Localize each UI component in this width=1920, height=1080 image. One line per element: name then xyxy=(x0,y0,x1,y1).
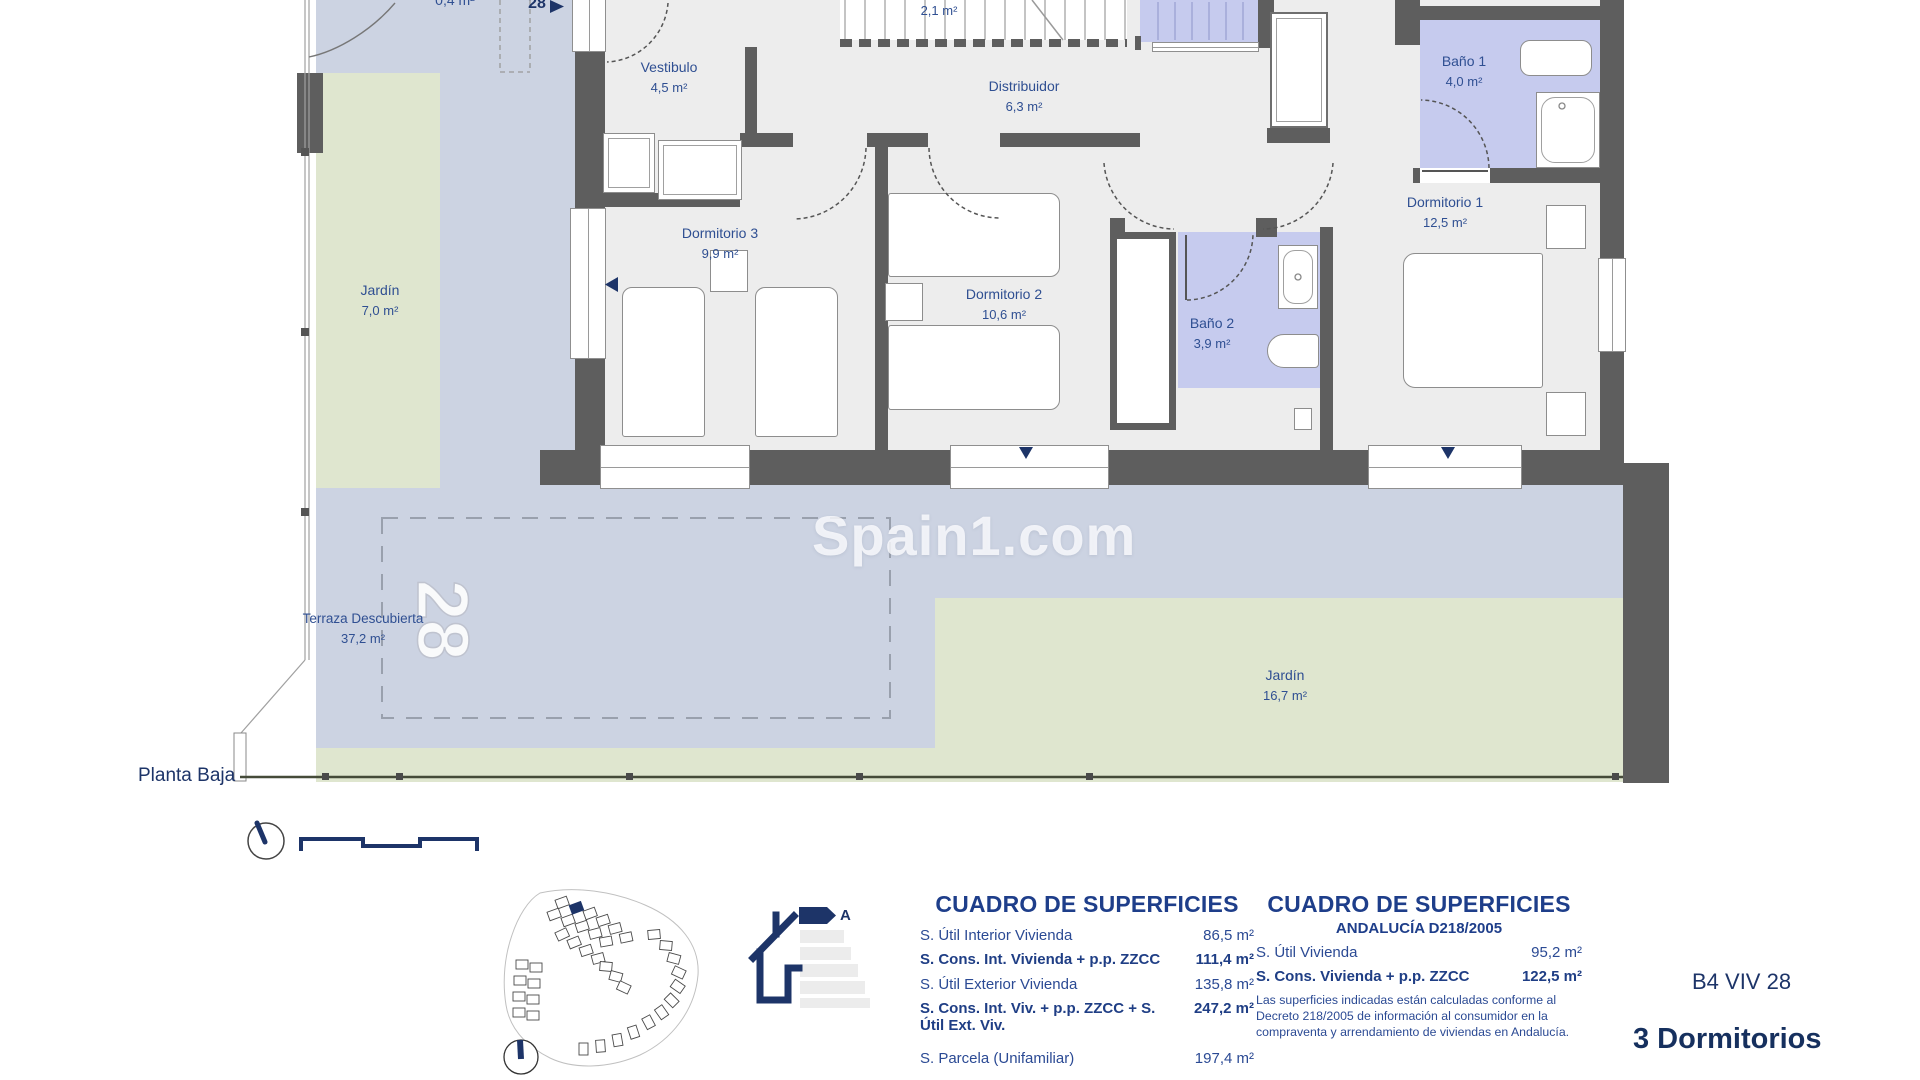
room-area: 4,5 m² xyxy=(651,81,688,95)
table-row: S. Cons. Vivienda + p.p. ZZCC 122,5 m² xyxy=(1256,968,1582,985)
energy-rating-label: A xyxy=(840,907,851,924)
gate-arc xyxy=(309,3,395,57)
door-leaves xyxy=(1186,171,1488,300)
garden-area: 7,0 m² xyxy=(362,304,399,318)
room-area-escalera: 2,1 m² xyxy=(921,4,958,18)
floor-plan-page: A Spain1.com 28 0,4 m² 28 Vestibulo 4,5 … xyxy=(0,0,1920,1080)
table-row: S. Cons. Int. Viv. + p.p. ZZCC + S. Útil… xyxy=(920,1000,1254,1035)
unit-marker: 28 xyxy=(528,0,546,13)
room-label-dormitorio2: Dormitorio 2 xyxy=(966,287,1042,302)
room-area: 10,6 m² xyxy=(982,308,1026,322)
table-row: S. Cons. Int. Vivienda + p.p. ZZCC 111,4… xyxy=(920,951,1254,968)
room-label-bano1: Baño 1 xyxy=(1442,54,1486,69)
room-label-bano2: Baño 2 xyxy=(1190,316,1234,331)
room-area: 12,5 m² xyxy=(1423,216,1467,230)
compass-icon xyxy=(248,823,284,859)
scale-bar xyxy=(301,839,477,851)
faucet-dots xyxy=(1295,103,1565,280)
room-label-distribuidor: Distribuidor xyxy=(989,79,1060,94)
porch-outline xyxy=(500,0,530,72)
table-row: S. Útil Interior Vivienda 86,5 m² xyxy=(920,927,1254,944)
unit-type: 3 Dormitorios xyxy=(1633,1023,1822,1056)
garden-area: 16,7 m² xyxy=(1263,689,1307,703)
room-area: 4,0 m² xyxy=(1446,75,1483,89)
highlighted-unit xyxy=(569,901,585,915)
surface-table-andalucia: CUADRO DE SUPERFICIES ANDALUCÍA D218/200… xyxy=(1256,891,1582,1040)
unit-code: B4 VIV 28 xyxy=(1692,969,1791,995)
surface-table: CUADRO DE SUPERFICIES S. Útil Interior V… xyxy=(920,891,1254,1068)
garden-label-north: Jardín xyxy=(361,283,400,298)
floor-label: Planta Baja xyxy=(138,765,235,787)
watermark: Spain1.com xyxy=(812,503,1136,568)
room-label-dormitorio3: Dormitorio 3 xyxy=(682,226,758,241)
energy-rating-icon xyxy=(753,907,870,1008)
table-row: S. Parcela (Unifamiliar) 197,4 m² xyxy=(920,1050,1254,1067)
room-label-dormitorio1: Dormitorio 1 xyxy=(1407,195,1483,210)
room-area: 6,3 m² xyxy=(1006,100,1043,114)
terrace-area: 37,2 m² xyxy=(341,632,385,646)
landing-steps xyxy=(1158,2,1243,40)
stairs xyxy=(845,0,1125,40)
surface-table-title: CUADRO DE SUPERFICIES xyxy=(1256,891,1582,918)
door-arcs xyxy=(607,3,1489,300)
garden-label-south: Jardín xyxy=(1266,668,1305,683)
table-row: S. Útil Exterior Vivienda 135,8 m² xyxy=(920,976,1254,993)
room-label: 0,4 m² xyxy=(435,0,475,8)
plot-fence xyxy=(241,0,309,733)
room-area: 9,9 m² xyxy=(702,247,739,261)
room-label-vestibulo: Vestibulo xyxy=(641,60,698,75)
terrace-label: Terraza Descubierta xyxy=(303,612,424,627)
table-row: S. Útil Vivienda 95,2 m² xyxy=(1256,944,1582,961)
room-area: 3,9 m² xyxy=(1194,337,1231,351)
surface-table-subtitle: ANDALUCÍA D218/2005 xyxy=(1256,920,1582,937)
surface-table-title: CUADRO DE SUPERFICIES xyxy=(920,891,1254,918)
site-plan-map xyxy=(504,890,698,1074)
gate-post xyxy=(234,733,246,781)
legal-note: Las superficies indicadas están calculad… xyxy=(1256,992,1582,1041)
